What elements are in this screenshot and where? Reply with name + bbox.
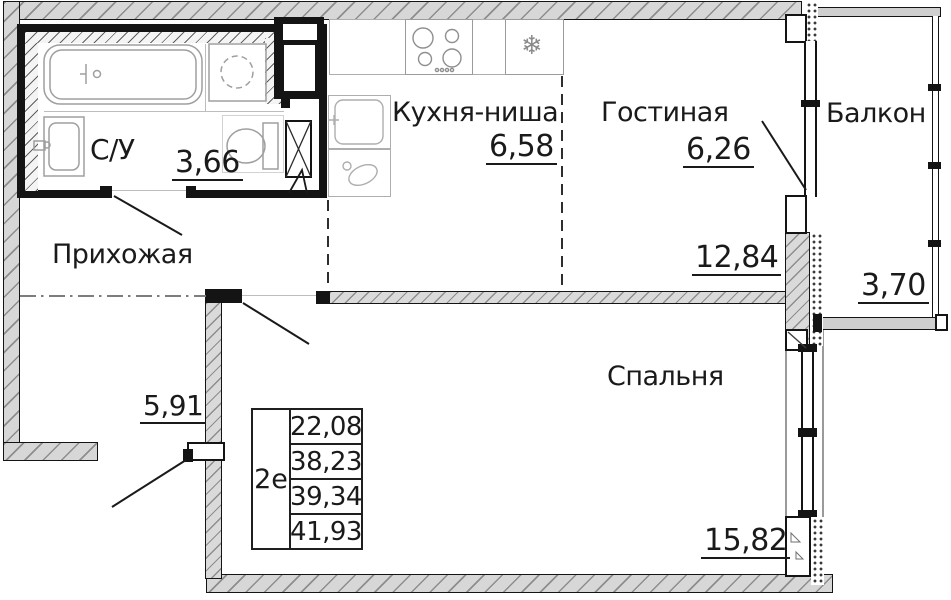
hallway-label: Прихожая (52, 239, 193, 270)
stove-box (405, 19, 473, 75)
balcony-bottom-wall (817, 317, 947, 330)
entrance-door-swing (112, 460, 186, 507)
fridge-icon: ❄ (521, 31, 543, 61)
balcony-door-frame-top (785, 14, 807, 43)
bedroom-window-tick-mid (798, 428, 817, 437)
balcony-bottom-cap-left (813, 314, 822, 332)
hallway-bottom-wall (3, 442, 98, 461)
bedroom-window-tick-top (798, 344, 817, 352)
kitchen-sink-box (328, 95, 391, 149)
living-label: Гостиная (601, 97, 729, 128)
bathroom-door-cap-right (186, 186, 196, 198)
balcony-glazing-tick-2 (928, 162, 941, 169)
kitchen-zone-dash-left (327, 200, 329, 288)
hallway-area: 5,91 (140, 391, 206, 424)
balcony-area: 3,70 (858, 269, 929, 304)
table-row: 39,34 (291, 478, 361, 513)
balcony-glazing-tick-3 (928, 240, 941, 247)
living-combined-area: 12,84 (692, 241, 781, 276)
unit-type-cell: 2е (253, 410, 291, 548)
table-row: 41,93 (291, 513, 361, 548)
top-wall (3, 1, 802, 20)
bedroom-top-wall-cap (316, 291, 330, 304)
kitchen-label: Кухня-ниша (392, 97, 558, 128)
bathroom-guide-h (44, 111, 284, 112)
floor-plan: ❄ (0, 0, 951, 600)
balcony-label: Балкон (826, 98, 926, 129)
balcony-bottom-cap-right (935, 314, 948, 331)
table-row: 38,23 (291, 443, 361, 478)
bathroom-hatch-top (25, 32, 278, 43)
bedroom-door-opening-line (242, 295, 316, 296)
bathroom-hatch-left (25, 43, 38, 191)
balcony-door-swing (762, 121, 806, 190)
bedroom-area: 15,82 (701, 524, 790, 559)
balcony-door-frame-bottom (785, 195, 807, 234)
balcony-glazing-tick-1 (928, 84, 941, 91)
bottom-wall (206, 574, 833, 593)
bedroom-door-swing (243, 303, 309, 344)
balcony-top-wall (817, 7, 941, 17)
bathroom-label: С/У (90, 133, 135, 166)
areas-column: 22,08 38,23 39,34 41,93 (291, 410, 361, 548)
kitchen-lower-box (328, 149, 391, 197)
living-area: 6,26 (683, 133, 754, 168)
table-row: 22,08 (291, 410, 361, 443)
kitchen-zone-dash-right (561, 76, 563, 290)
bathroom-door-opening-line (110, 190, 186, 191)
bedroom-left-wall (205, 289, 222, 579)
vent-shaft-hole-2 (284, 45, 315, 91)
bedroom-door-hinge-cap (205, 289, 242, 303)
duct-box-x (285, 120, 312, 178)
vent-shaft-hole-1 (283, 24, 317, 40)
kitchen-area: 6,58 (486, 130, 557, 165)
insulation-strip-bottom (811, 517, 824, 585)
apartment-info-table: 2е 22,08 38,23 39,34 41,93 (251, 408, 363, 550)
balcony-door-glazing (804, 41, 817, 197)
bathroom-guide-v (205, 44, 206, 111)
glazing-tick (801, 100, 820, 107)
hallway-axis-line (20, 295, 206, 297)
bedroom-label: Спальня (607, 361, 724, 392)
bathroom-area: 3,66 (172, 146, 243, 181)
entrance-door-hinge-cap (183, 449, 193, 462)
bathroom-door-cap-left (100, 186, 112, 198)
bedroom-top-wall (316, 291, 786, 304)
bathroom-door-swing (114, 196, 182, 235)
